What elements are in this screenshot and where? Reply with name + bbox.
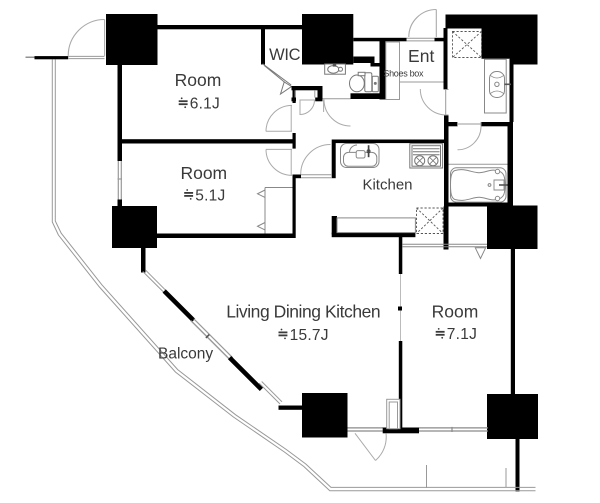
- svg-text:Shoes box: Shoes box: [383, 69, 424, 79]
- svg-text:Ent: Ent: [408, 46, 434, 66]
- svg-text:Room: Room: [180, 163, 227, 183]
- svg-text:15.7J: 15.7J: [290, 327, 329, 344]
- svg-text:6.1J: 6.1J: [190, 96, 220, 113]
- svg-text:7.1J: 7.1J: [447, 326, 477, 343]
- svg-text:Room: Room: [432, 301, 479, 321]
- svg-text:WIC: WIC: [269, 46, 301, 64]
- svg-text:Balcony: Balcony: [158, 345, 213, 362]
- svg-text:5.1J: 5.1J: [195, 187, 225, 204]
- svg-text:Kitchen: Kitchen: [362, 177, 412, 194]
- svg-text:Room: Room: [175, 70, 222, 90]
- svg-text:Living Dining Kitchen: Living Dining Kitchen: [226, 302, 380, 322]
